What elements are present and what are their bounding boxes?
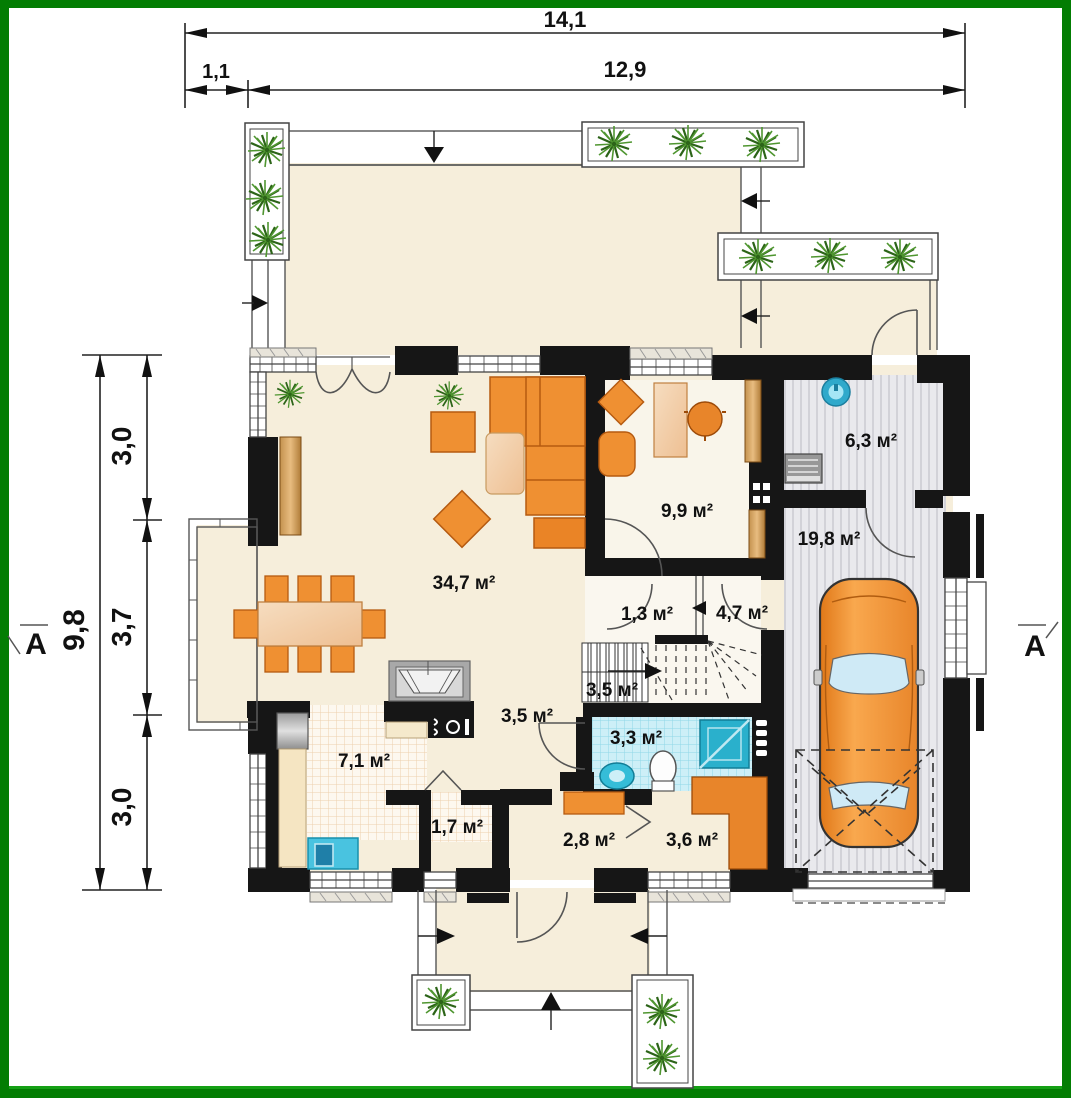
svg-text:3,5 м²: 3,5 м² <box>586 680 638 701</box>
svg-text:34,7 м²: 34,7 м² <box>433 573 496 594</box>
svg-text:3,7: 3,7 <box>106 608 137 647</box>
svg-text:14,1: 14,1 <box>544 7 587 32</box>
svg-text:A: A <box>1024 630 1046 663</box>
svg-text:9,8: 9,8 <box>58 609 91 651</box>
svg-text:9,9 м²: 9,9 м² <box>661 501 713 522</box>
svg-text:7,1 м²: 7,1 м² <box>338 751 390 772</box>
svg-text:1,1: 1,1 <box>202 61 230 83</box>
svg-text:2,8 м²: 2,8 м² <box>563 830 615 851</box>
svg-text:A: A <box>25 628 47 661</box>
svg-text:3,0: 3,0 <box>106 788 137 827</box>
svg-text:1,3 м²: 1,3 м² <box>621 604 673 625</box>
svg-text:12,9: 12,9 <box>604 57 647 82</box>
svg-text:1,7 м²: 1,7 м² <box>431 817 483 838</box>
svg-text:3,0: 3,0 <box>106 427 137 466</box>
svg-text:6,3 м²: 6,3 м² <box>845 431 897 452</box>
svg-text:19,8 м²: 19,8 м² <box>798 529 861 550</box>
svg-text:3,3 м²: 3,3 м² <box>610 728 662 749</box>
svg-text:3,5 м²: 3,5 м² <box>501 706 553 727</box>
svg-text:4,7 м²: 4,7 м² <box>716 603 768 624</box>
svg-text:3,6 м²: 3,6 м² <box>666 830 718 851</box>
